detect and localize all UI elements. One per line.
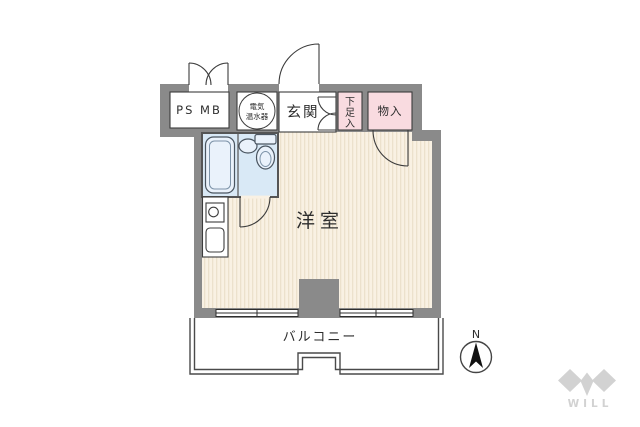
bathroom-unit [202, 133, 278, 197]
balcony: バルコニー [190, 318, 443, 374]
door-arc-entrance [279, 44, 319, 84]
bathroom-doorway-gap [241, 196, 270, 199]
floor-plan-page: PS MB 電気 温水器 玄関 下 足 入 物入 [0, 0, 640, 427]
logo-diamond-right [592, 369, 616, 392]
water-heater-label-1: 電気 [250, 101, 265, 111]
kitchen-unit [203, 197, 229, 257]
sink-icon [239, 139, 257, 153]
wall-right [432, 130, 441, 318]
ps-mb-label: PS MB [176, 103, 222, 117]
shoe-storage-char-2: 足 [345, 107, 355, 119]
balcony-label: バルコニー [283, 330, 358, 345]
water-heater-label-2: 温水器 [246, 111, 269, 121]
brand-label: WILL [568, 398, 613, 410]
main-room-label: 洋室 [296, 210, 344, 232]
storage-label: 物入 [378, 104, 403, 118]
door-arc-psmb-left [189, 63, 211, 85]
compass-north-label: N [472, 328, 480, 341]
logo-diamond-center [581, 373, 594, 397]
top-compartments: PS MB 電気 温水器 玄関 下 足 入 物入 [170, 92, 412, 132]
doorway-gap-psmb [189, 84, 228, 92]
shoe-storage-char-1: 下 [345, 97, 355, 108]
floor-plan-drawing: PS MB 電気 温水器 玄関 下 足 入 物入 [0, 0, 640, 427]
shoe-storage-char-3: 入 [345, 119, 355, 130]
door-arc-psmb-right [206, 63, 228, 85]
wall-left [194, 128, 202, 318]
water-heater-icon [239, 93, 275, 129]
compass: N [461, 328, 492, 373]
pillar [299, 279, 339, 311]
logo-diamond-left [558, 369, 582, 392]
toilet-bowl-icon [257, 146, 275, 169]
entrance-label: 玄関 [287, 104, 320, 121]
doorway-gap-entrance [279, 84, 319, 92]
balcony-outer-line [190, 318, 443, 374]
toilet-tank-icon [255, 135, 276, 145]
brand-logo: WILL [558, 369, 616, 410]
